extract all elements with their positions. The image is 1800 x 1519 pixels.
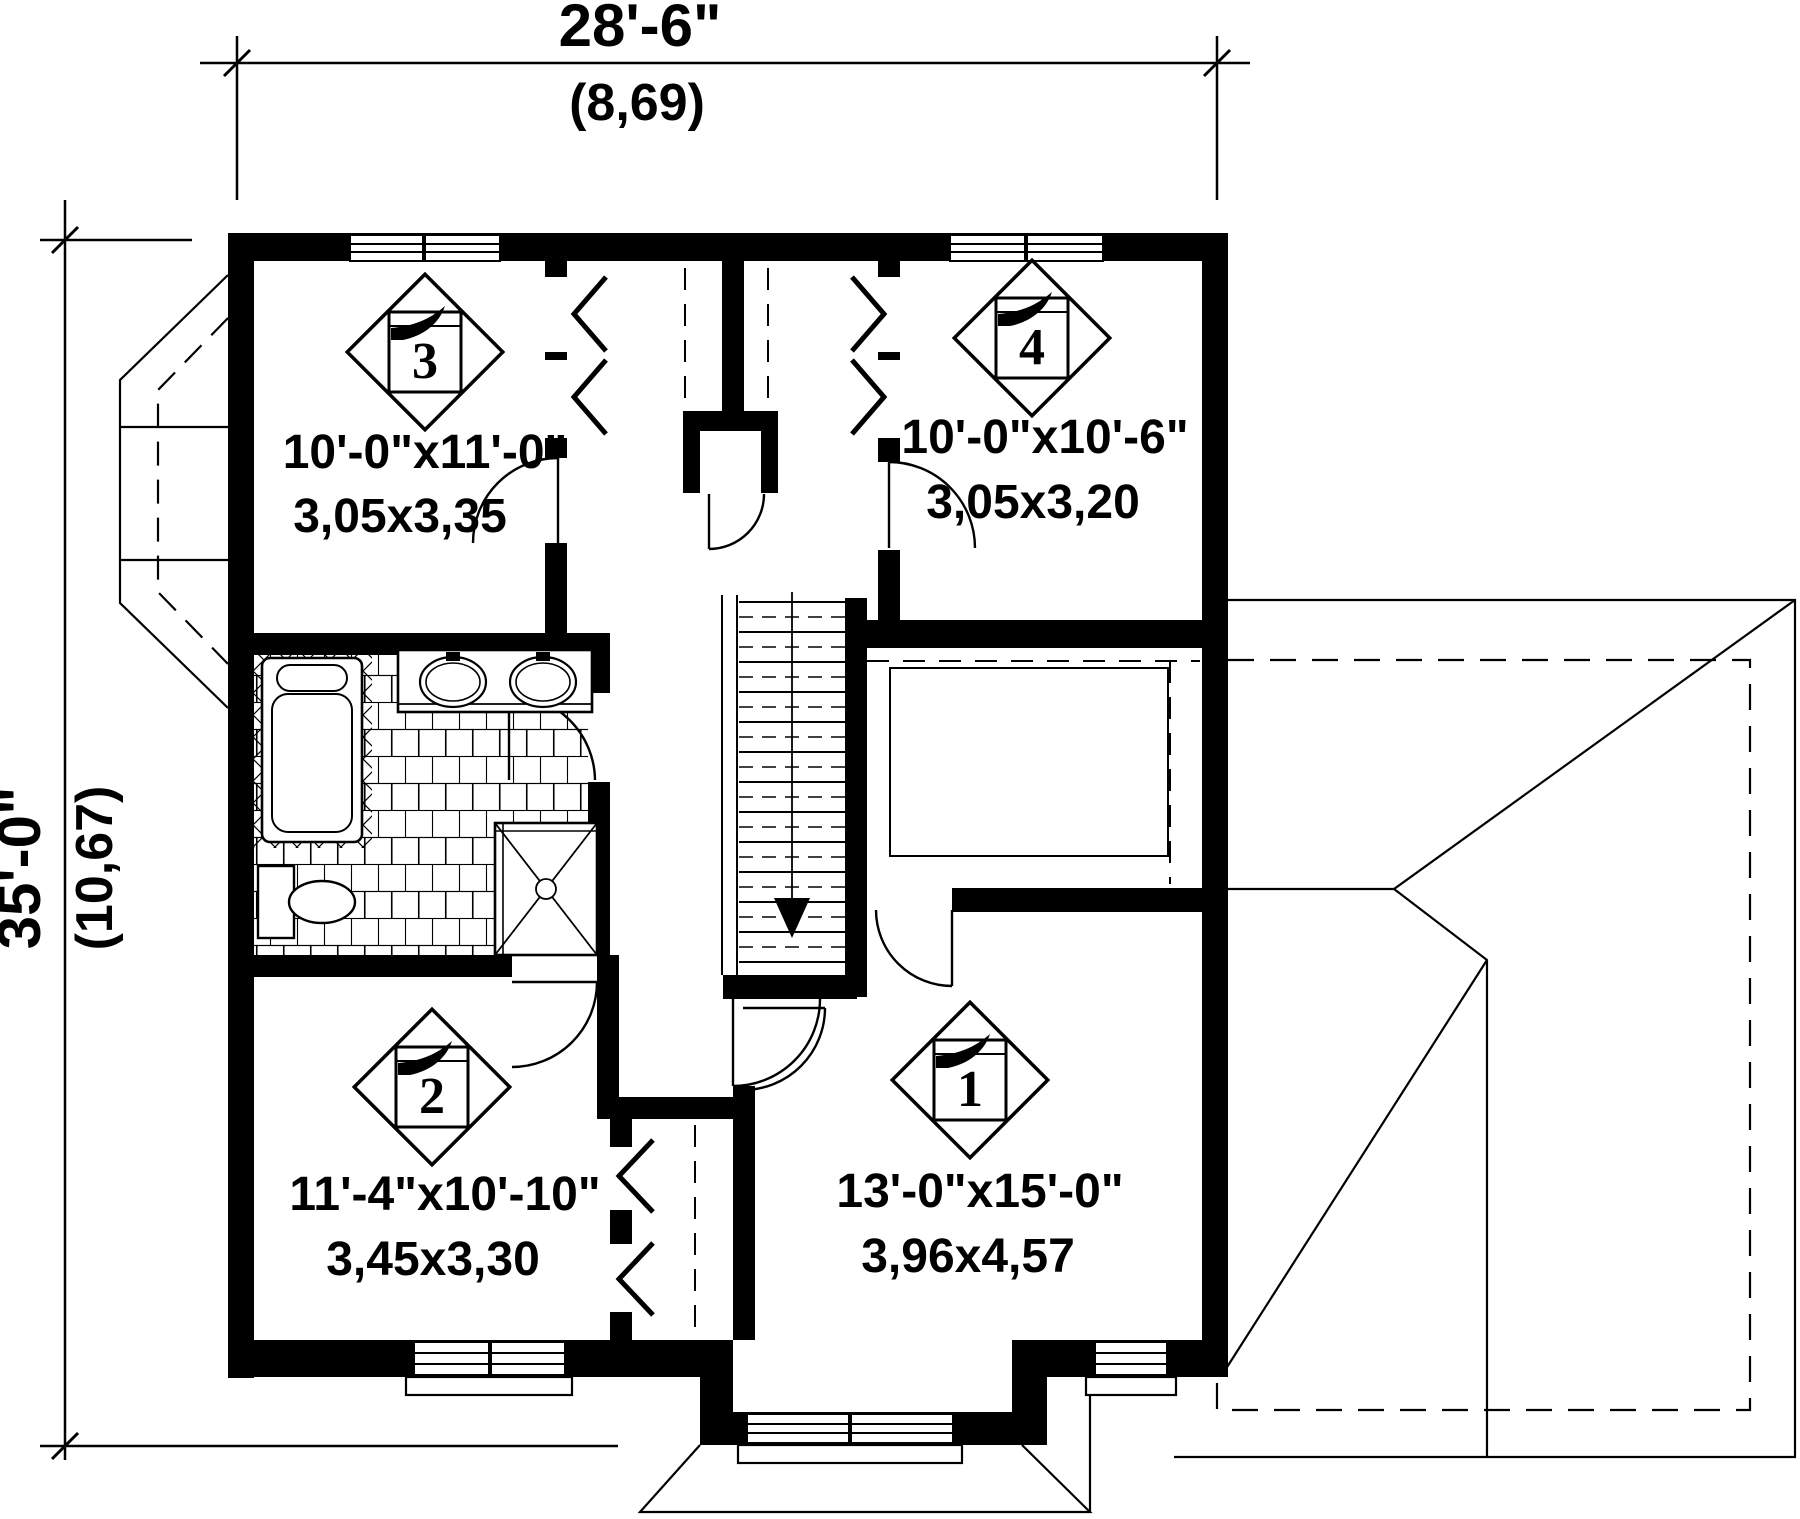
dimension-top-imperial: 28'-6" [559, 0, 722, 59]
room-4-size-imperial: 10'-0"x10'-6" [901, 411, 1188, 464]
bifold-door-icon [619, 1243, 653, 1315]
window-top-left [350, 235, 500, 261]
bathroom [254, 650, 597, 955]
staircase [722, 592, 845, 975]
room-2-marker: 2 [354, 1009, 510, 1165]
room-1-size-imperial: 13'-0"x15'-0" [836, 1165, 1123, 1218]
room-1-size-metric: 3,96x4,57 [861, 1230, 1075, 1283]
door-bedroom2 [512, 982, 597, 1067]
dimension-top: 28'-6" (8,69) [200, 0, 1250, 200]
bifold-door-icon [852, 277, 884, 351]
room-2-size-metric: 3,45x3,30 [326, 1233, 540, 1286]
room-3-size-metric: 3,05x3,35 [293, 490, 507, 543]
bifold-door-icon [574, 360, 606, 434]
room-4-marker: 4 [954, 260, 1110, 416]
room-3-size-imperial: 10'-0"x11'-0" [283, 426, 568, 479]
dimension-top-metric: (8,69) [569, 74, 705, 132]
dimension-left-metric: (10,67) [66, 786, 124, 951]
floor-plan-canvas: 28'-6" (8,69) 35'-0" (10,67) [0, 0, 1800, 1519]
faucet-icon [536, 652, 550, 661]
door-bedroom1 [743, 1008, 825, 1090]
vanity-double-sink [398, 650, 592, 712]
bifold-door-icon [574, 277, 606, 351]
sink-icon [510, 657, 576, 707]
floor-plan-page: 28'-6" (8,69) 35'-0" (10,67) [0, 0, 1800, 1519]
door-hall [733, 999, 820, 1086]
svg-text:3: 3 [412, 333, 438, 390]
window-bay-bottom [747, 1414, 953, 1443]
window-bedroom2 [414, 1342, 565, 1375]
drain-icon [536, 879, 556, 899]
bay-window-roof [120, 275, 228, 708]
faucet-icon [446, 652, 460, 661]
sink-icon [420, 657, 486, 707]
svg-text:1: 1 [957, 1061, 983, 1118]
room-2-size-imperial: 11'-4"x10'-10" [289, 1168, 600, 1221]
garage-roof-outline [1174, 600, 1795, 1457]
shower [495, 823, 597, 955]
svg-text:4: 4 [1019, 319, 1045, 376]
bifold-doors [574, 277, 884, 1315]
dimension-left-imperial: 35'-0" [0, 787, 53, 950]
room-1-marker: 1 [892, 1002, 1048, 1158]
svg-text:2: 2 [419, 1068, 445, 1125]
walkin-closet-outline [890, 668, 1168, 856]
door-walkin-closet [876, 910, 952, 986]
bifold-door-icon [619, 1140, 653, 1212]
window-bottom-right [1095, 1342, 1167, 1375]
room-4-size-metric: 3,05x3,20 [926, 476, 1140, 529]
door-linen-closet [709, 494, 764, 549]
bifold-door-icon [852, 360, 884, 434]
room-3-marker: 3 [347, 274, 503, 430]
bathtub [254, 650, 372, 848]
window-top-right [950, 235, 1103, 261]
